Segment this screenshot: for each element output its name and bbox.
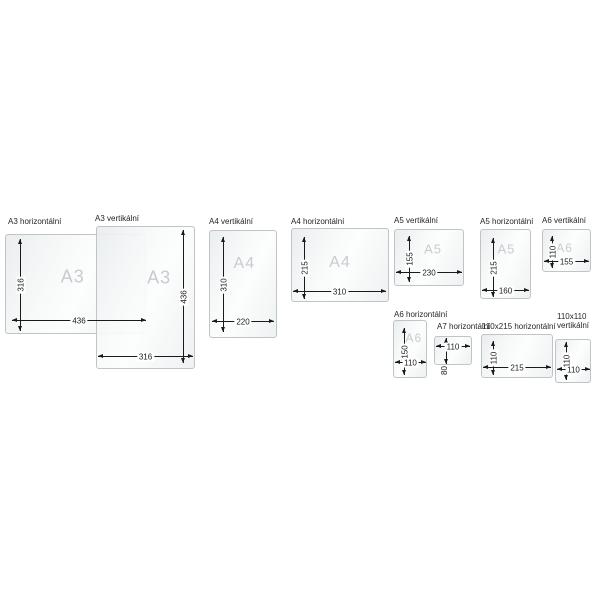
dimension-value: 155 <box>558 257 575 266</box>
dimension-value: 316 <box>137 352 154 361</box>
dimension-value: 215 <box>489 259 498 276</box>
dimension-value: 160 <box>497 286 514 295</box>
dimension-value: 110 <box>489 350 498 367</box>
sheet-letter: A4 <box>234 255 256 273</box>
width-dimension-110x110-vertical: 110 <box>557 369 590 370</box>
panel-label-a3-vertical: A3 vertikální <box>95 214 139 223</box>
panel-label-110x215-horizontal: 110x215 horizontální <box>482 322 556 331</box>
sheet-letter: A6 <box>556 241 573 255</box>
sheet-letter: A5 <box>498 242 516 257</box>
height-dimension-a6-horizontal: 150 <box>404 328 405 375</box>
dimension-value: 310 <box>219 276 228 293</box>
dimension-value: 110 <box>445 342 462 351</box>
dimension-value: 310 <box>331 287 348 296</box>
width-dimension-a3-horizontal: 436 <box>12 320 146 321</box>
panel-label-a6-vertical: A6 vertikální <box>542 216 586 225</box>
sheet-a6-horizontal: A6 <box>393 320 427 378</box>
sheet-a5-vertical: A5 <box>394 229 464 286</box>
width-dimension-a4-vertical: 220 <box>212 321 274 322</box>
sheet-letter: A3 <box>147 267 171 288</box>
width-dimension-a6-horizontal: 110 <box>395 362 426 363</box>
height-dimension-110x110-vertical: 110 <box>566 342 567 380</box>
sheet-letter: A5 <box>424 241 442 256</box>
height-dimension-a4-vertical: 310 <box>223 237 224 332</box>
dimension-value: 230 <box>420 268 437 277</box>
width-dimension-a6-vertical: 155 <box>544 261 589 262</box>
panel-label-110x110-vertical: 110x110 vertikální <box>557 312 589 330</box>
panel-label-a5-vertical: A5 vertikální <box>394 216 438 225</box>
dimension-value: 215 <box>508 363 525 372</box>
height-dimension-a3-vertical: 436 <box>183 230 184 363</box>
sheet-letter: A4 <box>329 254 351 272</box>
dimension-value: 155 <box>405 250 414 267</box>
dimension-value: 110 <box>548 244 557 261</box>
paper-format-diagram: A3 A3 A4 A4 A5 A5 A6 A6 A3 horizontální … <box>0 0 600 600</box>
dimension-value: 110 <box>402 358 419 367</box>
panel-label-a4-horizontal: A4 horizontální <box>291 217 344 226</box>
height-dimension-a6-vertical: 110 <box>552 236 553 268</box>
dimension-value: 80 <box>440 366 449 375</box>
dimension-value: 436 <box>70 316 87 325</box>
height-dimension-a4-horizontal: 215 <box>304 237 305 299</box>
dimension-value: 110 <box>565 365 582 374</box>
height-dimension-110x215-horizontal: 110 <box>493 341 494 375</box>
panel-label-a4-vertical: A4 vertikální <box>209 217 253 226</box>
width-dimension-a7-horizontal: 110 <box>436 346 470 347</box>
panel-label-a5-horizontal: A5 horizontální <box>480 217 533 226</box>
width-dimension-a3-vertical: 316 <box>98 356 193 357</box>
dimension-value: 220 <box>234 317 251 326</box>
height-dimension-a3-horizontal: 316 <box>20 239 21 331</box>
dimension-value: 436 <box>179 288 188 305</box>
height-dimension-a5-vertical: 155 <box>409 236 410 282</box>
width-dimension-a5-horizontal: 160 <box>482 290 529 291</box>
height-dimension-a5-horizontal: 215 <box>493 238 494 297</box>
width-dimension-a4-horizontal: 310 <box>293 291 386 292</box>
width-dimension-110x215-horizontal: 215 <box>483 367 551 368</box>
panel-label-a6-horizontal: A6 horizontální <box>394 310 447 319</box>
sheet-letter: A3 <box>61 267 85 288</box>
panel-label-a3-horizontal: A3 horizontální <box>8 217 61 226</box>
width-dimension-a5-vertical: 230 <box>396 272 462 273</box>
dimension-value: 215 <box>300 259 309 276</box>
sheet-110x110-vertical <box>555 339 591 383</box>
dimension-value: 316 <box>16 276 25 293</box>
